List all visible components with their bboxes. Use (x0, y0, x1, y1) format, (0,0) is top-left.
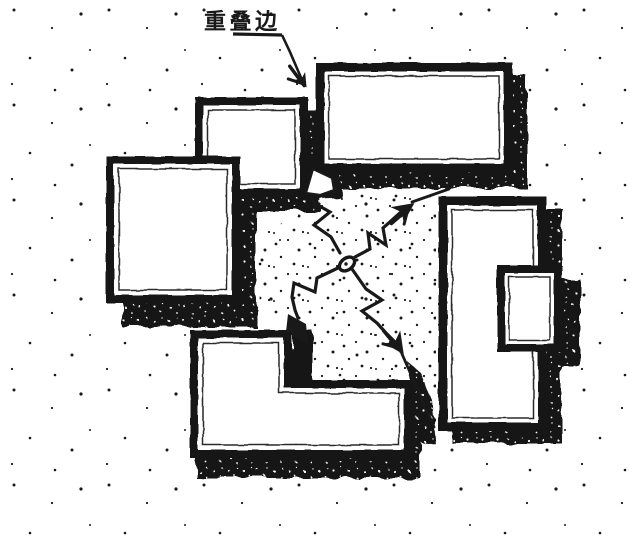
block-top-right (320, 67, 508, 168)
block-outline (110, 160, 236, 299)
block-left (110, 160, 236, 299)
sketch-canvas: 重叠边 (0, 0, 640, 540)
label-underline (233, 34, 282, 35)
overlap-edge-label: 重叠边 (204, 10, 281, 35)
block-right-small (501, 269, 558, 348)
site-plan-sketch: 重叠边 (0, 0, 640, 540)
block-outline (320, 67, 508, 168)
center-dot (344, 262, 347, 265)
